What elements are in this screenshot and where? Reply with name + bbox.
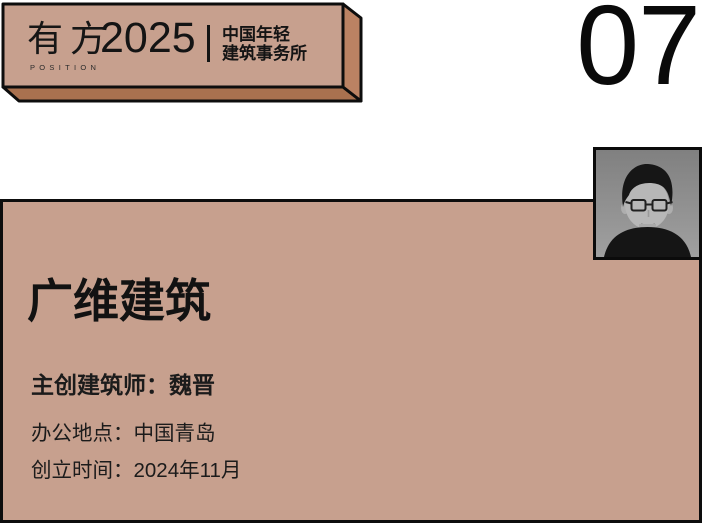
studio-name: 广维建筑	[27, 276, 211, 326]
architect-value: 魏晋	[169, 372, 215, 398]
location-value: 中国青岛	[134, 422, 216, 445]
banner-subtitle: 中国年轻 建筑事务所	[222, 25, 307, 63]
banner-divider	[207, 25, 210, 62]
architect-label: 主创建筑师：	[31, 372, 169, 398]
banner-box: 有方 POSITION 2025 中国年轻 建筑事务所	[0, 0, 372, 110]
portrait-person-icon	[596, 150, 699, 257]
portrait-photo	[593, 147, 702, 260]
founded-label: 创立时间：	[31, 459, 134, 482]
poster-page: 07 有方 POSITION 2025 中国年轻 建筑事务所	[0, 0, 702, 523]
architect-line: 主创建筑师：魏晋	[31, 366, 215, 400]
founded-value: 2024年11月	[134, 459, 242, 482]
location-line: 办公地点：中国青岛	[31, 416, 216, 446]
logo-english: POSITION	[30, 63, 100, 72]
founded-line: 创立时间：2024年11月	[31, 453, 241, 483]
banner-subtitle-line1: 中国年轻	[222, 25, 307, 44]
banner-subtitle-line2: 建筑事务所	[222, 44, 307, 63]
banner-year: 2025	[100, 17, 196, 59]
page-number: 07	[576, 0, 700, 102]
location-label: 办公地点：	[31, 422, 134, 445]
